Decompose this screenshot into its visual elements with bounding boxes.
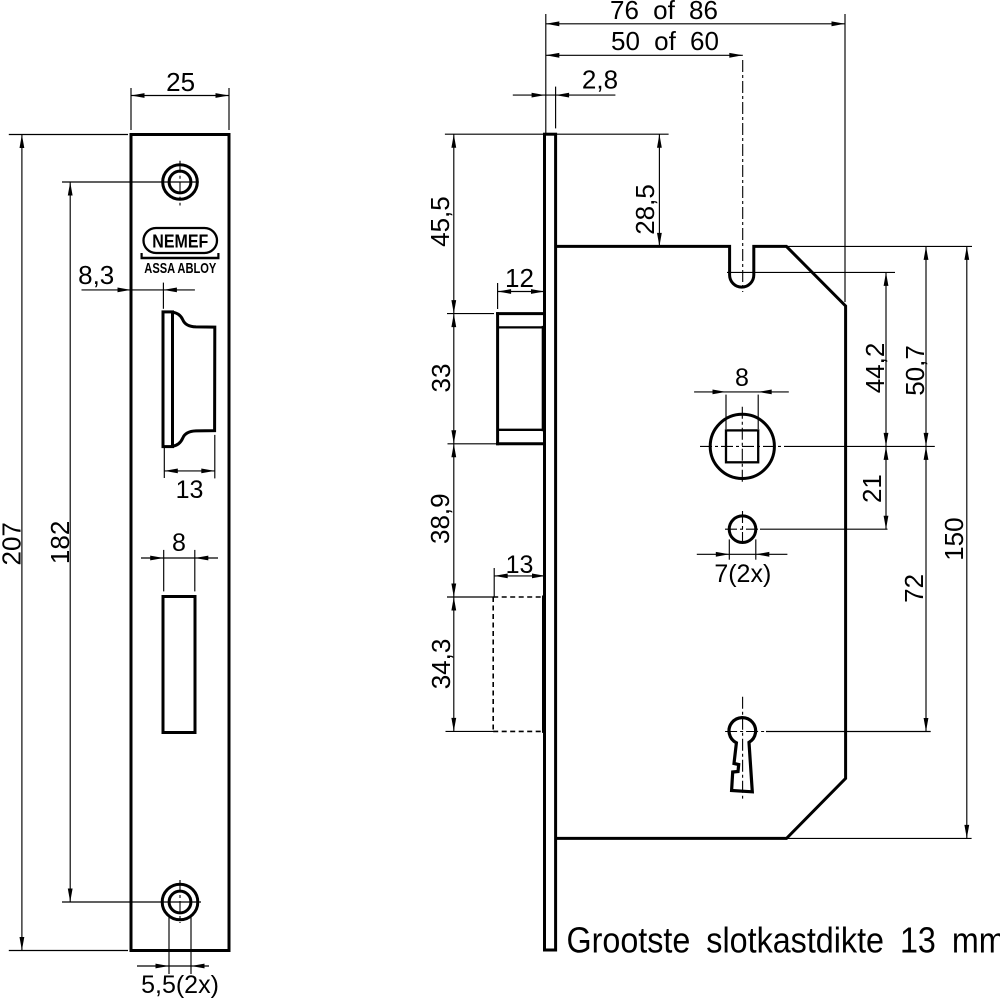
svg-text:8: 8: [172, 529, 186, 557]
svg-text:76 of 86: 76 of 86: [610, 0, 718, 25]
svg-text:28,5: 28,5: [630, 184, 660, 235]
svg-text:2,8: 2,8: [582, 65, 618, 95]
svg-text:ASSA ABLOY: ASSA ABLOY: [144, 260, 216, 277]
svg-text:8: 8: [735, 364, 749, 392]
svg-text:13: 13: [506, 551, 534, 579]
svg-text:21: 21: [857, 474, 887, 503]
svg-text:44,2: 44,2: [860, 343, 890, 394]
svg-text:25: 25: [166, 67, 195, 97]
svg-text:182: 182: [45, 521, 75, 564]
svg-text:7(2x): 7(2x): [714, 560, 771, 588]
svg-text:12: 12: [505, 263, 534, 293]
svg-text:50,7: 50,7: [900, 345, 930, 396]
svg-text:13: 13: [176, 476, 204, 504]
svg-text:5,5(2x): 5,5(2x): [141, 971, 219, 998]
svg-text:8,3: 8,3: [78, 260, 114, 290]
svg-text:33: 33: [426, 364, 456, 393]
svg-text:50 of 60: 50 of 60: [611, 26, 719, 56]
svg-text:45,5: 45,5: [425, 196, 455, 247]
svg-text:NEMEF: NEMEF: [152, 230, 208, 251]
svg-text:207: 207: [0, 522, 27, 565]
svg-text:34,3: 34,3: [426, 639, 456, 690]
svg-text:150: 150: [939, 517, 969, 560]
svg-text:38,9: 38,9: [425, 493, 455, 544]
svg-text:72: 72: [899, 574, 929, 603]
svg-text:Grootste slotkastdikte 13 mm: Grootste slotkastdikte 13 mm: [567, 921, 1000, 961]
